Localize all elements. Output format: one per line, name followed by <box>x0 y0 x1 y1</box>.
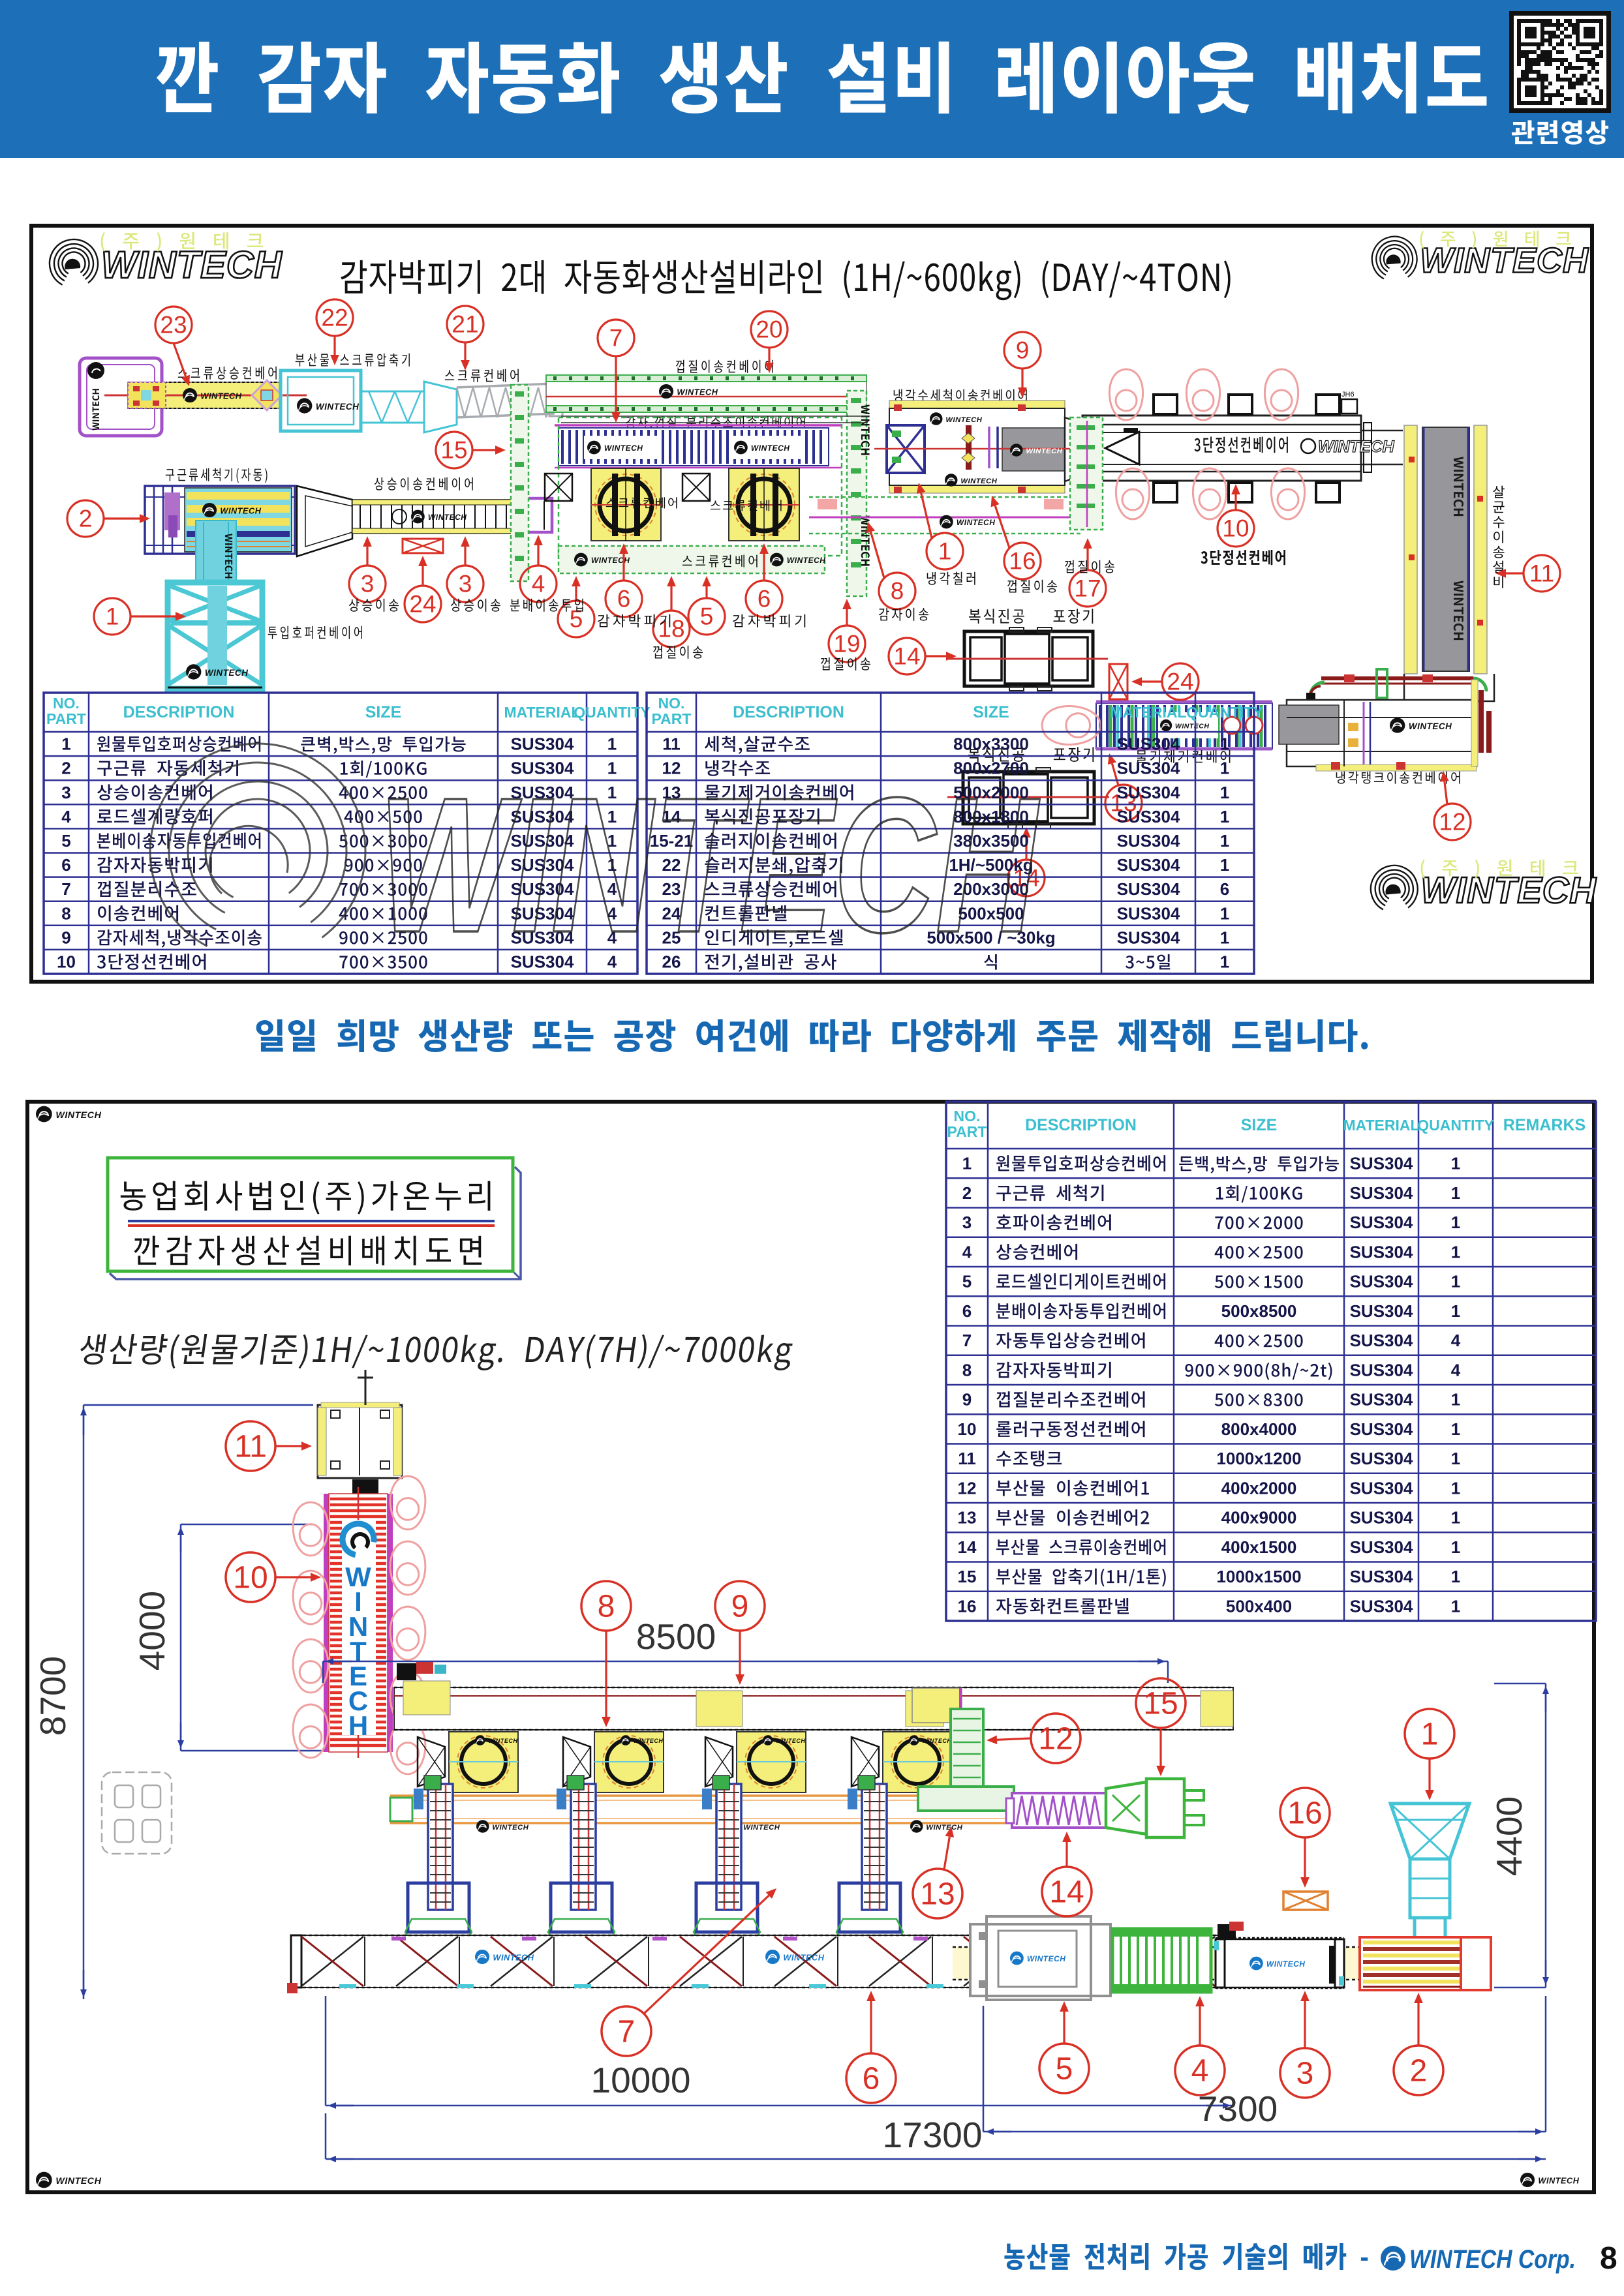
svg-text:1: 1 <box>1451 1596 1460 1616</box>
svg-text:6: 6 <box>1220 879 1229 899</box>
svg-text:7300: 7300 <box>1198 2089 1278 2129</box>
svg-text:1: 1 <box>1451 1567 1460 1586</box>
svg-text:15: 15 <box>958 1567 977 1586</box>
svg-text:SUS304: SUS304 <box>1350 1242 1413 1261</box>
svg-text:6: 6 <box>962 1301 972 1321</box>
svg-text:1: 1 <box>1220 928 1229 947</box>
svg-text:14: 14 <box>1049 1875 1084 1909</box>
svg-text:WINTECH: WINTECH <box>428 513 467 522</box>
svg-text:MATERIAL: MATERIAL <box>1110 704 1186 721</box>
svg-text:QUANTITY: QUANTITY <box>1186 704 1263 721</box>
svg-text:400x9000: 400x9000 <box>1221 1508 1297 1528</box>
svg-text:500x400: 500x400 <box>1226 1596 1292 1616</box>
svg-text:7: 7 <box>61 879 70 899</box>
svg-text:1: 1 <box>1451 1508 1460 1528</box>
svg-text:8700: 8700 <box>33 1656 73 1736</box>
svg-text:WINTECH: WINTECH <box>751 444 790 453</box>
svg-text:WINTECH: WINTECH <box>957 518 996 527</box>
svg-text:SUS304: SUS304 <box>1350 1301 1413 1321</box>
svg-text:9: 9 <box>962 1390 972 1410</box>
svg-text:1: 1 <box>1451 1390 1460 1410</box>
svg-text:14: 14 <box>893 643 920 670</box>
svg-text:WINTECH: WINTECH <box>634 1738 664 1744</box>
svg-text:WINTECH: WINTECH <box>220 506 261 516</box>
svg-text:SIZE: SIZE <box>1241 1116 1278 1134</box>
svg-text:WINTECH: WINTECH <box>316 402 360 412</box>
svg-text:2: 2 <box>79 506 93 532</box>
svg-text:REMARKS: REMARKS <box>1503 1116 1586 1134</box>
svg-text:WINTECH: WINTECH <box>378 757 1041 973</box>
svg-text:7: 7 <box>618 2014 636 2049</box>
svg-text:10: 10 <box>958 1419 977 1439</box>
svg-text:24: 24 <box>1167 669 1193 695</box>
svg-text:2: 2 <box>61 759 70 778</box>
svg-text:4: 4 <box>1191 2053 1209 2088</box>
svg-text:3: 3 <box>361 571 375 597</box>
svg-text:500x8500: 500x8500 <box>1221 1301 1297 1321</box>
svg-text:1: 1 <box>1451 1213 1460 1232</box>
svg-text:WINTECH: WINTECH <box>1027 1954 1066 1963</box>
svg-text:H: H <box>348 1710 368 1741</box>
svg-text:4: 4 <box>61 807 71 826</box>
svg-text:WINTECH: WINTECH <box>101 244 283 286</box>
svg-text:SUS304: SUS304 <box>1117 783 1180 802</box>
svg-text:SUS304: SUS304 <box>1350 1419 1413 1439</box>
svg-text:WINTECH: WINTECH <box>1538 2176 1579 2186</box>
svg-text:4400: 4400 <box>1489 1796 1529 1876</box>
svg-text:5: 5 <box>570 606 583 633</box>
svg-text:SUS304: SUS304 <box>1350 1596 1413 1616</box>
svg-text:SUS304: SUS304 <box>1117 759 1180 778</box>
svg-text:15: 15 <box>1143 1686 1178 1721</box>
svg-text:1: 1 <box>607 734 617 754</box>
svg-text:SUS304: SUS304 <box>1350 1449 1413 1468</box>
svg-text:WINTECH: WINTECH <box>55 1110 101 1121</box>
svg-text:12: 12 <box>1038 1721 1073 1756</box>
svg-text:8: 8 <box>1600 2241 1617 2276</box>
svg-text:12: 12 <box>1439 809 1465 836</box>
svg-text:SIZE: SIZE <box>973 703 1009 721</box>
svg-text:SUS304: SUS304 <box>1350 1272 1413 1291</box>
svg-text:SUS304: SUS304 <box>511 734 574 754</box>
svg-text:NO.: NO. <box>658 695 685 712</box>
svg-text:SUS304: SUS304 <box>1350 1360 1413 1380</box>
svg-text:DESCRIPTION: DESCRIPTION <box>733 703 844 721</box>
svg-text:WINTECH: WINTECH <box>776 1738 806 1744</box>
svg-text:6: 6 <box>758 586 771 612</box>
svg-text:400x2000: 400x2000 <box>1221 1478 1297 1498</box>
svg-text:9: 9 <box>731 1589 749 1624</box>
svg-text:1: 1 <box>962 1154 972 1173</box>
svg-text:8: 8 <box>962 1360 972 1380</box>
svg-text:MATERIAL: MATERIAL <box>1343 1117 1419 1134</box>
svg-text:20: 20 <box>756 316 782 343</box>
svg-text:MATERIAL: MATERIAL <box>504 704 580 721</box>
svg-text:4: 4 <box>962 1242 972 1261</box>
svg-text:1: 1 <box>1220 734 1229 754</box>
svg-text:24: 24 <box>409 591 436 618</box>
svg-text:21: 21 <box>452 311 478 338</box>
svg-text:3: 3 <box>1296 2056 1314 2091</box>
svg-text:WINTECH: WINTECH <box>1420 241 1589 280</box>
svg-text:SUS304: SUS304 <box>1117 855 1180 875</box>
svg-text:SUS304: SUS304 <box>1350 1213 1413 1232</box>
svg-text:DESCRIPTION: DESCRIPTION <box>123 703 235 721</box>
svg-text:4000: 4000 <box>132 1591 172 1670</box>
svg-text:5: 5 <box>61 831 70 851</box>
svg-text:14: 14 <box>958 1537 977 1557</box>
svg-text:8: 8 <box>598 1589 615 1624</box>
svg-text:11: 11 <box>234 1429 267 1464</box>
svg-text:8500: 8500 <box>636 1616 716 1657</box>
svg-text:1: 1 <box>1451 1242 1460 1261</box>
svg-text:1: 1 <box>1451 1301 1460 1321</box>
svg-text:WINTECH: WINTECH <box>787 556 826 565</box>
svg-text:15: 15 <box>440 437 467 464</box>
svg-text:PART: PART <box>652 710 692 727</box>
svg-text:10000: 10000 <box>591 2060 691 2100</box>
svg-text:11: 11 <box>662 734 681 754</box>
svg-text:19: 19 <box>833 631 860 657</box>
svg-text:WINTECH: WINTECH <box>492 1824 529 1832</box>
svg-text:WINTECH: WINTECH <box>493 1953 534 1963</box>
svg-text:800x4000: 800x4000 <box>1221 1419 1297 1439</box>
svg-text:WINTECH: WINTECH <box>1409 721 1452 731</box>
svg-text:SUS304: SUS304 <box>1117 879 1180 899</box>
svg-text:8: 8 <box>61 903 70 923</box>
svg-text:4: 4 <box>1451 1360 1461 1380</box>
svg-text:SUS304: SUS304 <box>1117 807 1180 826</box>
svg-text:WINTECH: WINTECH <box>200 391 241 401</box>
svg-text:1000x1200: 1000x1200 <box>1216 1449 1301 1468</box>
svg-text:3: 3 <box>61 783 70 802</box>
svg-text:6: 6 <box>863 2061 880 2096</box>
svg-text:SUS304: SUS304 <box>1350 1478 1413 1498</box>
svg-text:WINTECH: WINTECH <box>945 416 982 424</box>
svg-text:PART: PART <box>46 710 86 727</box>
svg-text:10: 10 <box>233 1560 268 1595</box>
svg-text:SUS304: SUS304 <box>1117 734 1180 754</box>
svg-text:WINTECH Corp.: WINTECH Corp. <box>1409 2245 1576 2274</box>
svg-text:13: 13 <box>958 1508 977 1528</box>
svg-text:5: 5 <box>962 1272 972 1291</box>
svg-text:13: 13 <box>920 1877 955 1911</box>
svg-text:1: 1 <box>1220 759 1229 778</box>
svg-text:PART: PART <box>947 1123 987 1140</box>
svg-text:11: 11 <box>958 1449 976 1468</box>
svg-text:WINTECH: WINTECH <box>926 1824 962 1832</box>
svg-text:SUS304: SUS304 <box>1350 1183 1413 1203</box>
svg-text:7: 7 <box>609 325 623 352</box>
svg-text:WINTECH: WINTECH <box>783 1953 824 1963</box>
svg-text:1: 1 <box>1220 831 1229 851</box>
svg-text:DESCRIPTION: DESCRIPTION <box>1025 1116 1137 1134</box>
svg-text:WINTECH: WINTECH <box>604 444 643 453</box>
svg-text:WINTECH: WINTECH <box>677 387 718 397</box>
svg-text:SUS304: SUS304 <box>1350 1331 1413 1350</box>
svg-text:WINTECH: WINTECH <box>1266 1959 1306 1969</box>
svg-text:18: 18 <box>658 616 684 642</box>
svg-text:17300: 17300 <box>883 2115 983 2155</box>
svg-text:5: 5 <box>1056 2051 1073 2086</box>
svg-text:WINTECH: WINTECH <box>922 1738 952 1744</box>
svg-text:800x3300: 800x3300 <box>953 734 1029 754</box>
svg-text:1: 1 <box>1451 1183 1460 1203</box>
svg-text:1: 1 <box>1220 952 1229 971</box>
svg-text:WINTECH: WINTECH <box>1318 438 1395 456</box>
svg-text:5: 5 <box>700 603 714 630</box>
svg-text:SUS304: SUS304 <box>1117 928 1180 947</box>
svg-text:4: 4 <box>532 571 545 597</box>
svg-text:SUS304: SUS304 <box>1117 903 1180 923</box>
svg-text:1: 1 <box>106 603 119 630</box>
svg-text:10: 10 <box>1222 515 1249 542</box>
svg-text:SUS304: SUS304 <box>1350 1508 1413 1528</box>
svg-text:SIZE: SIZE <box>365 703 402 721</box>
svg-text:16: 16 <box>958 1596 977 1616</box>
svg-text:NO.: NO. <box>53 695 80 712</box>
svg-text:QUANTITY: QUANTITY <box>1417 1117 1494 1134</box>
svg-text:22: 22 <box>321 305 348 331</box>
svg-text:1: 1 <box>1451 1478 1460 1498</box>
svg-text:9: 9 <box>1016 337 1030 364</box>
svg-text:1: 1 <box>1451 1419 1460 1439</box>
svg-text:WINTECH: WINTECH <box>488 1738 518 1744</box>
svg-text:1: 1 <box>1220 807 1229 826</box>
svg-text:2: 2 <box>962 1183 972 1203</box>
svg-text:NO.: NO. <box>954 1108 981 1125</box>
svg-text:SUS304: SUS304 <box>1350 1154 1413 1173</box>
svg-text:1: 1 <box>1451 1537 1460 1557</box>
svg-text:WINTECH: WINTECH <box>743 1824 780 1832</box>
svg-text:WINTECH: WINTECH <box>960 477 997 485</box>
svg-text:11: 11 <box>1529 560 1554 587</box>
svg-text:WINTECH: WINTECH <box>1026 447 1062 455</box>
svg-text:3: 3 <box>459 571 472 597</box>
svg-text:1: 1 <box>1451 1449 1460 1468</box>
svg-text:1: 1 <box>1220 855 1229 875</box>
svg-text:3: 3 <box>962 1213 972 1232</box>
svg-text:1: 1 <box>61 734 70 754</box>
svg-text:WINTECH: WINTECH <box>205 668 249 678</box>
svg-text:6: 6 <box>617 586 631 612</box>
svg-text:SUS304: SUS304 <box>1350 1567 1413 1586</box>
svg-text:400x1500: 400x1500 <box>1221 1537 1297 1557</box>
svg-text:4: 4 <box>1451 1331 1461 1350</box>
svg-text:9: 9 <box>61 928 70 947</box>
svg-text:SUS304: SUS304 <box>1117 831 1180 851</box>
svg-text:1: 1 <box>1220 903 1229 923</box>
svg-text:16: 16 <box>1287 1796 1322 1830</box>
svg-text:SUS304: SUS304 <box>1350 1537 1413 1557</box>
svg-text:QUANTITY: QUANTITY <box>574 704 651 721</box>
svg-text:SUS304: SUS304 <box>1350 1390 1413 1410</box>
svg-text:1: 1 <box>1451 1154 1460 1173</box>
svg-text:8: 8 <box>891 578 904 605</box>
svg-text:1000x1500: 1000x1500 <box>1216 1567 1301 1586</box>
svg-text:16: 16 <box>1009 548 1035 575</box>
svg-text:6: 6 <box>61 855 70 875</box>
svg-text:7: 7 <box>962 1331 972 1350</box>
svg-text:WINTECH: WINTECH <box>1175 723 1210 731</box>
svg-text:12: 12 <box>958 1478 977 1498</box>
svg-text:1: 1 <box>1451 1272 1460 1291</box>
svg-text:23: 23 <box>160 312 187 339</box>
svg-text:1: 1 <box>938 538 952 565</box>
svg-text:1: 1 <box>1421 1717 1439 1751</box>
svg-text:2: 2 <box>1410 2053 1428 2088</box>
svg-text:WINTECH: WINTECH <box>55 2176 101 2186</box>
svg-text:JH6: JH6 <box>1341 391 1355 399</box>
svg-text:17: 17 <box>1074 575 1101 602</box>
svg-text:10: 10 <box>57 952 76 971</box>
svg-text:1: 1 <box>1220 783 1229 802</box>
